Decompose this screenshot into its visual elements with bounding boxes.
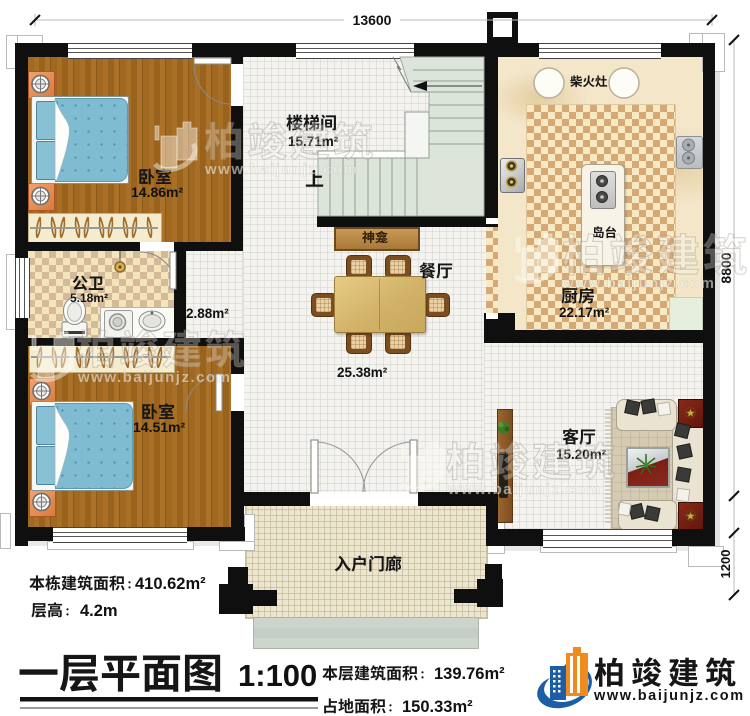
svg-text:www.baijunjz.com: www.baijunjz.com (593, 688, 745, 704)
svg-text:1:100: 1:100 (238, 658, 317, 693)
svg-text:1200: 1200 (718, 550, 733, 579)
svg-text:139.76m²: 139.76m² (434, 665, 505, 683)
svg-text:www.baijunjz.com: www.baijunjz.com (77, 369, 231, 386)
svg-text:13600: 13600 (353, 12, 392, 28)
svg-text:150.33m²: 150.33m² (402, 698, 473, 716)
svg-text:5.18m²: 5.18m² (70, 291, 108, 305)
svg-text:4.2m: 4.2m (80, 602, 118, 620)
svg-text:14.86m²: 14.86m² (131, 184, 183, 200)
svg-text:410.62m²: 410.62m² (135, 575, 206, 593)
svg-text:www.baijunjz.com: www.baijunjz.com (447, 481, 601, 498)
svg-text:25.38m²: 25.38m² (337, 365, 388, 380)
svg-text:14.51m²: 14.51m² (133, 419, 185, 435)
svg-text:www.baijunjz.com: www.baijunjz.com (204, 161, 358, 178)
svg-text:2.88m²: 2.88m² (186, 306, 229, 321)
svg-text:22.17m²: 22.17m² (559, 305, 610, 320)
svg-text:www.baijunjz.com: www.baijunjz.com (561, 275, 715, 292)
